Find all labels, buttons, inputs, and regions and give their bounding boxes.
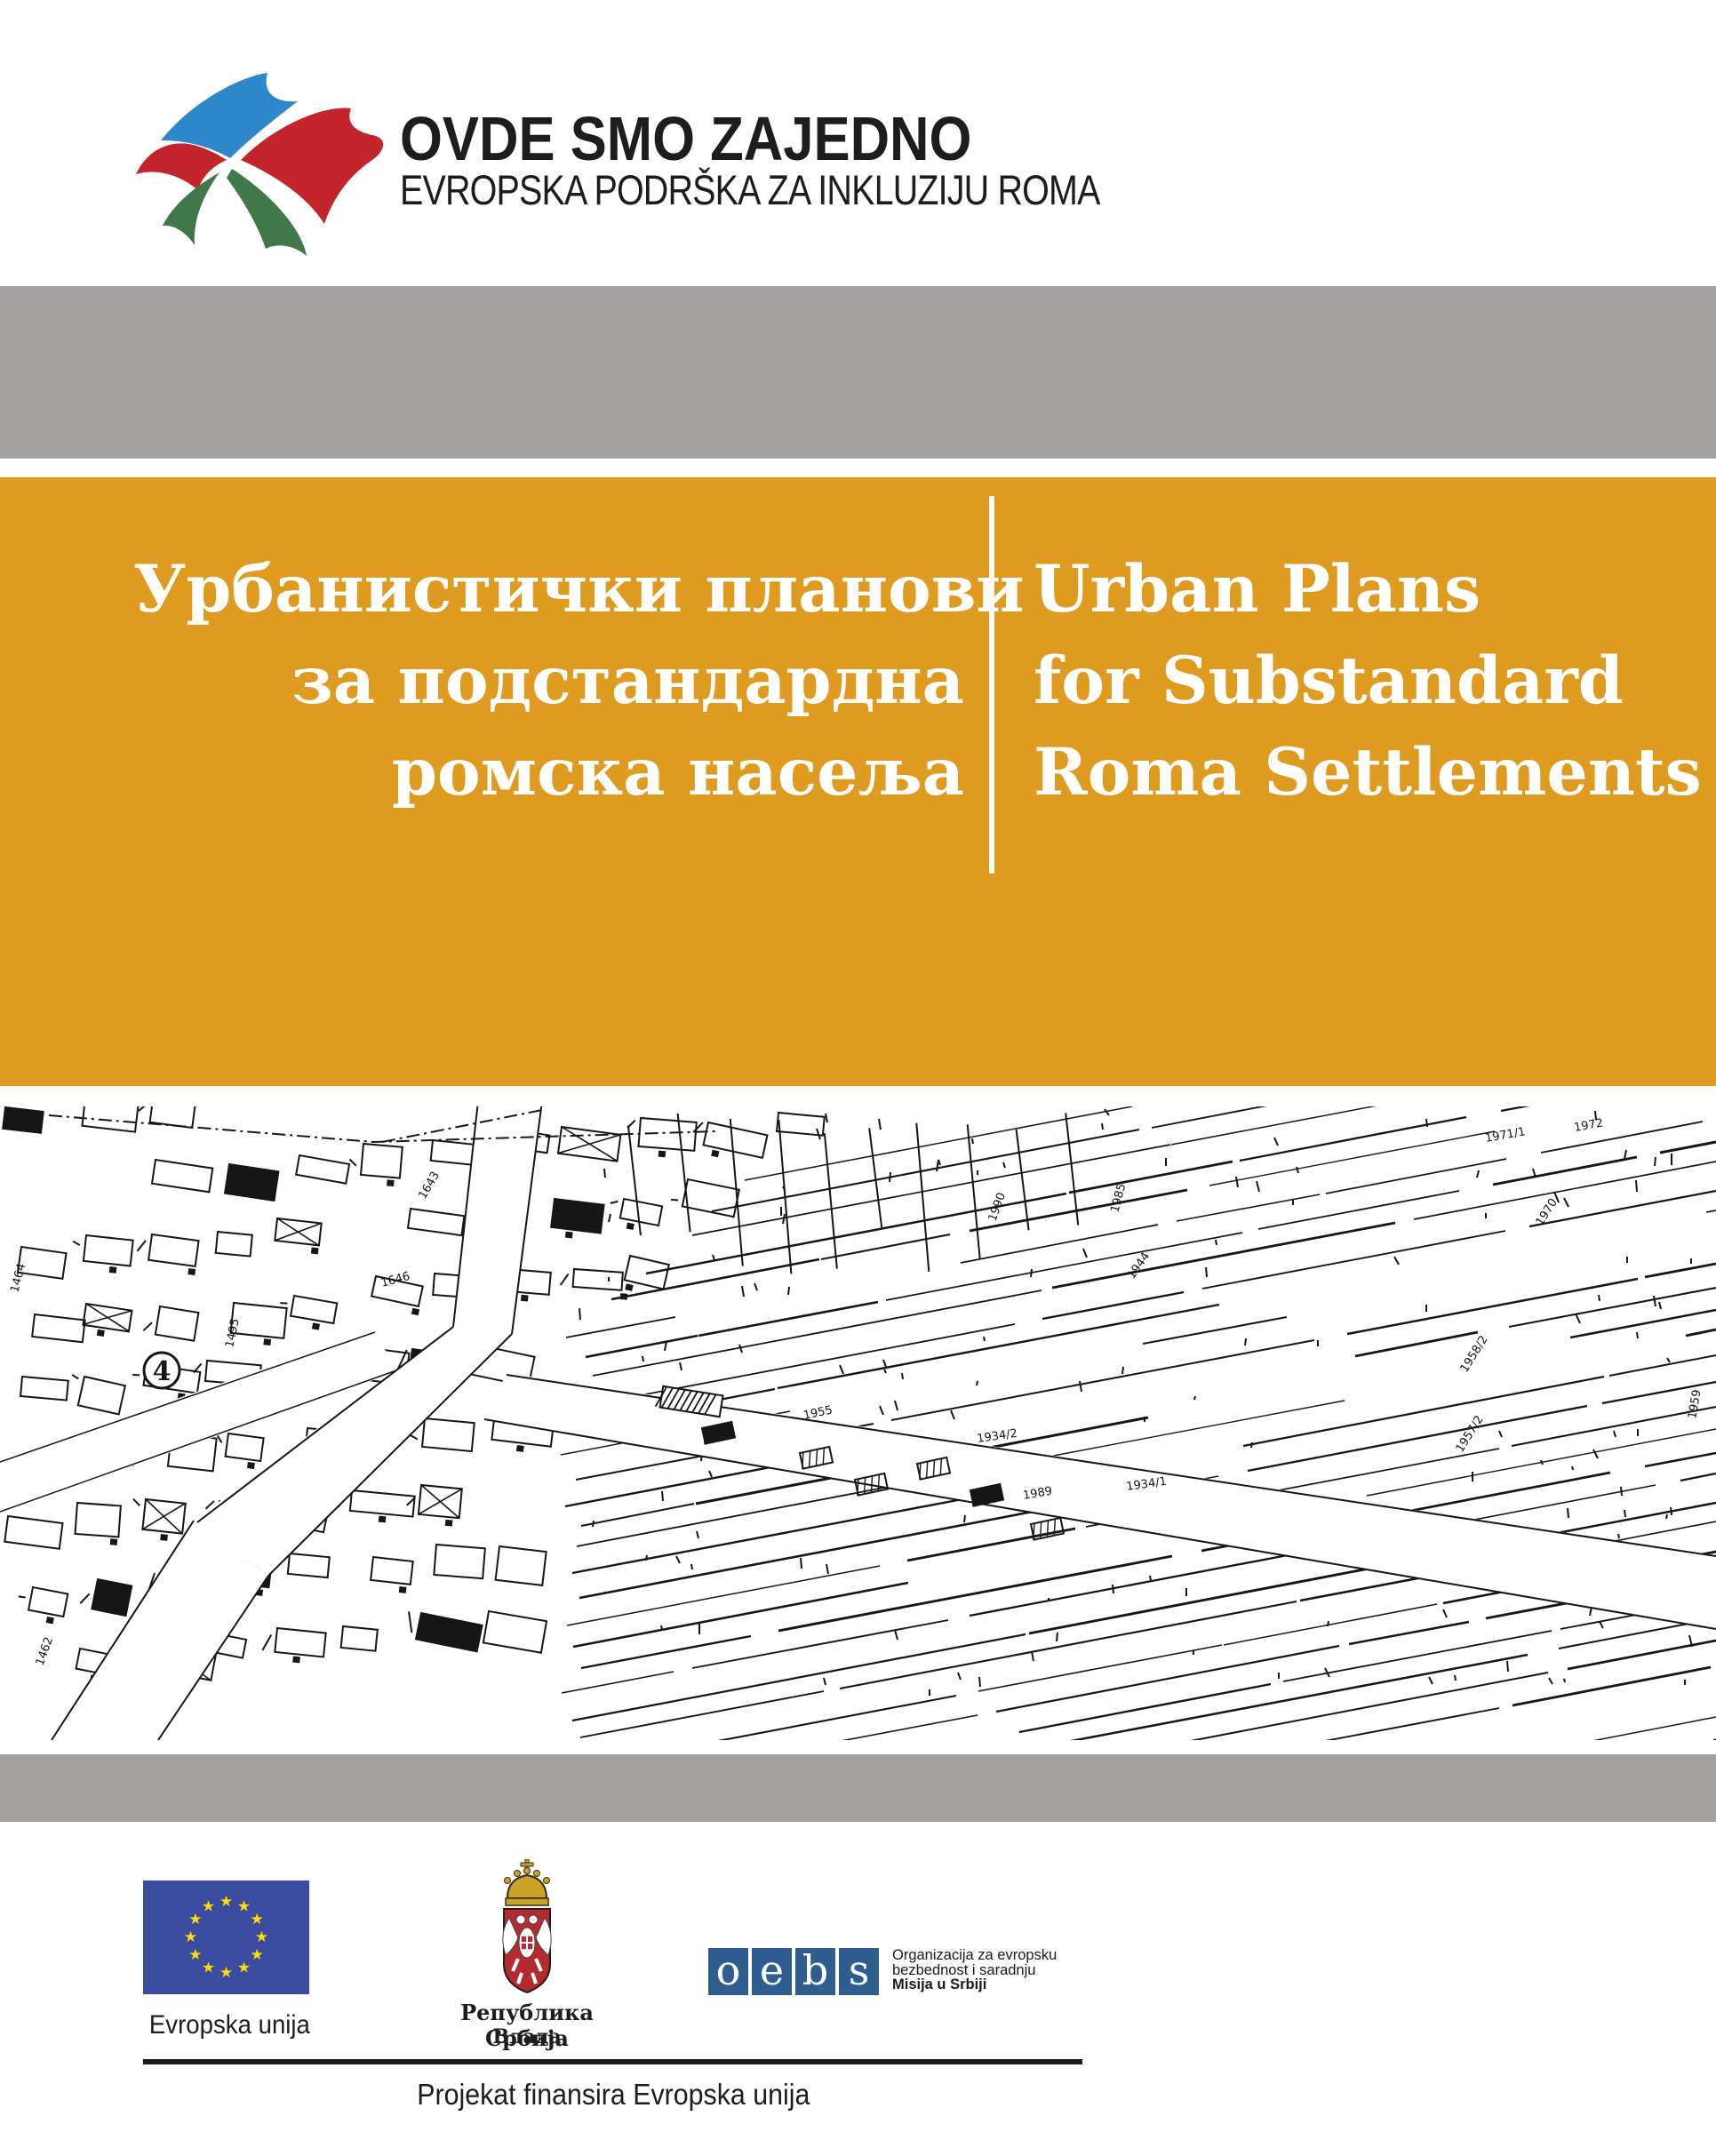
crown xyxy=(507,1875,547,1898)
osce-line1: Organizacija za evropsku xyxy=(892,1948,1123,1963)
osce-letter-e: e xyxy=(752,1948,792,1995)
cadastral-map: 41971/1197219701985199019441934/21989193… xyxy=(0,1106,1716,1740)
svg-text:★: ★ xyxy=(255,1928,268,1946)
brand-name: OVDE SMO ZAJEDNO xyxy=(400,103,1050,174)
title-en-line2: for Substandard xyxy=(1034,635,1691,727)
svg-text:★: ★ xyxy=(237,1960,251,1977)
gray-band-bottom xyxy=(0,1754,1716,1822)
svg-text:★: ★ xyxy=(188,1911,202,1928)
funding-note: Projekat finansira Evropska unija xyxy=(169,2078,1058,2112)
title-serbian: Урбанистички планови за подстандардна ро… xyxy=(133,544,964,818)
svg-text:★: ★ xyxy=(250,1946,263,1964)
svg-text:★: ★ xyxy=(219,1964,233,1982)
gray-band-top xyxy=(0,286,1716,459)
footer-rule xyxy=(143,2059,1082,2064)
svg-text:★: ★ xyxy=(237,1897,251,1915)
serbia-caption-line2: Влада xyxy=(416,2025,638,2048)
osce-logo: o e b s xyxy=(708,1948,879,1995)
svg-text:★: ★ xyxy=(202,1960,215,1977)
publication-cover: OVDE SMO ZAJEDNO EVROPSKA PODRŠKA ZA INK… xyxy=(0,0,1716,2156)
osce-line2: bezbednost i saradnju xyxy=(892,1963,1123,1978)
logo-red-left-sail xyxy=(136,143,227,190)
osce-letter-b: b xyxy=(795,1948,835,1995)
svg-text:★: ★ xyxy=(184,1928,197,1946)
title-sr-line3: ромска насеља xyxy=(133,727,964,818)
osce-letter-o: o xyxy=(708,1948,748,1995)
svg-text:★: ★ xyxy=(202,1897,215,1915)
osce-description: Organizacija za evropsku bezbednost i sa… xyxy=(892,1948,1123,1992)
cadastral-map-svg: 41971/1197219701985199019441934/21989193… xyxy=(0,1106,1716,1740)
brand-tagline: EVROPSKA PODRŠKA ZA INKLUZIJU ROMA xyxy=(400,165,1233,214)
eu-flag-caption: Evropska unija xyxy=(114,2010,345,2040)
title-en-line1: Urban Plans xyxy=(1034,544,1691,635)
svg-text:4: 4 xyxy=(153,1356,172,1387)
osce-letter-s: s xyxy=(839,1948,879,1995)
project-star-logo xyxy=(127,69,394,260)
title-en-line3: Roma Settlements xyxy=(1034,727,1691,818)
eu-flag: ★★★★★★★★★★★★ xyxy=(143,1881,309,1994)
title-sr-line1: Урбанистички планови xyxy=(133,544,964,635)
svg-text:★: ★ xyxy=(250,1911,263,1928)
serbia-coat-of-arms xyxy=(491,1859,563,2000)
svg-text:★: ★ xyxy=(219,1893,233,1911)
svg-text:★: ★ xyxy=(188,1946,202,1964)
orange-title-band: Урбанистички планови за подстандардна ро… xyxy=(0,477,1716,1086)
osce-line3: Misija u Srbiji xyxy=(892,1977,1123,1992)
title-sr-line2: за подстандардна xyxy=(133,635,964,727)
title-english: Urban Plans for Substandard Roma Settlem… xyxy=(1034,544,1691,818)
